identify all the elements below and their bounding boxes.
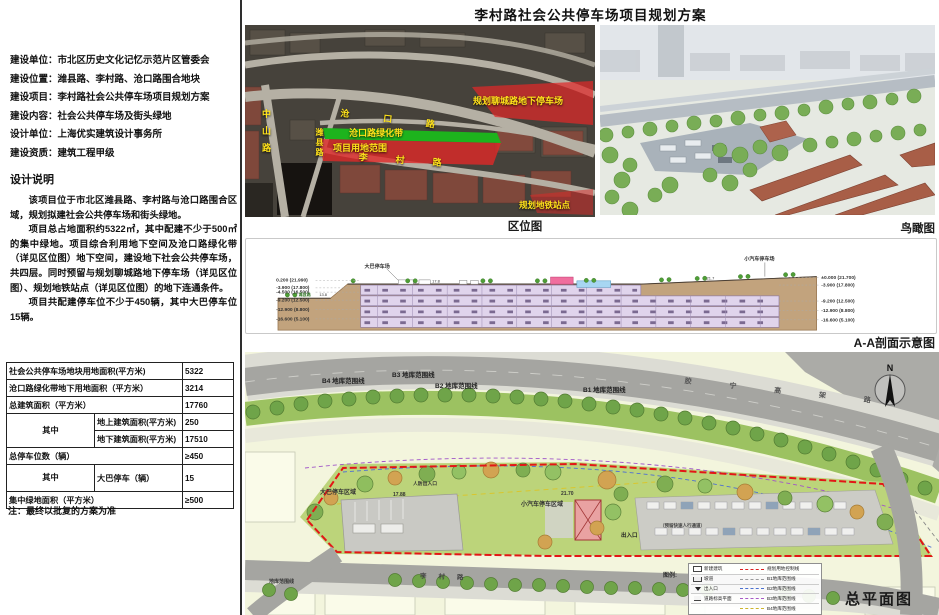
planned-parking-label: 规划聊城路地下停车场 (473, 97, 563, 106)
metro-label: 规划地铁站点 (519, 201, 570, 210)
road-elevation-icon (691, 596, 704, 601)
svg-text:-16.600 (5.100): -16.600 (5.100) (821, 317, 855, 323)
green-belt-label: 沧口路绿化带 (349, 129, 403, 138)
design-paragraph: 该项目位于市北区潍县路、李村路与沧口路围合区域，规划拟建社会公共停车场和街头绿地… (10, 193, 237, 222)
blue-dash-icon (740, 588, 767, 589)
legend-left-label: 道路标高平面 (704, 596, 740, 602)
design-notes: 设计说明 该项目位于市北区潍县路、李村路与沧口路围合区域，规划拟建社会公共停车场… (10, 171, 237, 324)
table-row: 总停车位数（辆） ≥450 (7, 448, 234, 465)
elevation-label-a: 17.88 (393, 493, 406, 498)
dark-block (245, 183, 273, 217)
design-notes-heading: 设计说明 (10, 171, 237, 187)
car-parking-lot (635, 490, 893, 550)
svg-text:0.200 (21.990): 0.200 (21.990) (276, 277, 308, 283)
b2-line-label: B2 地库范围线 (435, 384, 478, 391)
spec-value: 3214 (183, 380, 234, 397)
section-drawing: 0.200 (21.990) -3.900 (17.800) -4.500 (1… (246, 239, 936, 333)
table-row: 沧口路绿化带地下用地面积（平方米） 3214 (7, 380, 234, 397)
info-line: 建设位置：潍县路、李村路、沧口路围合地块 (10, 71, 238, 90)
aerial-view-caption: 鸟瞰图 (840, 220, 935, 236)
entrance-label: 出入口 (621, 534, 638, 540)
site-plan-caption: 总平面图 (845, 588, 913, 609)
svg-text:-9.200 (12.500): -9.200 (12.500) (821, 298, 855, 304)
planning-board: 建设单位：市北区历史文化记忆示范片区管委会 建设位置：潍县路、李村路、沧口路围合… (0, 0, 939, 615)
weixian-road-label: 潍县路 (299, 291, 312, 297)
spec-table: 社会公共停车场地块用地面积(平方米) 5322 沧口路绿化带地下用地面积（平方米… (6, 362, 234, 509)
aerial-view-drawing (600, 25, 935, 215)
location-map: 规划聊城路地下停车场 沧口路绿化带 项目用地范围 规划地铁站点 中山路 潍县路 … (245, 25, 595, 217)
weixian-road-label: 潍县路 (315, 128, 323, 158)
car-area-label: 小汽车停车区域 (521, 502, 563, 508)
elevation-13-8: 13.8 (319, 292, 327, 297)
table-row: 其中 地上建筑面积(平方米) 250 (7, 414, 234, 431)
svg-text:-3.900 (17.800): -3.900 (17.800) (821, 282, 855, 288)
legend-right-label: 规划用地控制线 (767, 566, 819, 572)
spec-label: 大巴停车（辆） (95, 465, 183, 492)
legend-row: 坡道 B1地库范围线 (691, 575, 819, 585)
b4-line-label: B4 地库范围线 (322, 379, 365, 386)
svg-text:-9.200 (12.500): -9.200 (12.500) (276, 298, 310, 304)
spec-label: 社会公共停车场地块用地面积(平方米) (7, 363, 183, 380)
spec-value: 17760 (183, 397, 234, 414)
legend-row: 新建建筑 规划用地控制线 (691, 565, 819, 575)
spec-label: 沧口路绿化带地下用地面积（平方米） (7, 380, 183, 397)
site-plan: N B4 地库范围线 B3 地库范围线 B2 地库范围线 B1 地库范围线 胶宁… (245, 352, 939, 615)
table-row: 其中 大巴停车（辆） 15 (7, 465, 234, 492)
elevation-21-7: 21.7 (707, 275, 715, 280)
zhongshan-road-label: 中山路 (261, 109, 270, 160)
gray-dash-icon (740, 579, 767, 580)
panel-divider (240, 0, 242, 615)
entrance-building (551, 277, 574, 284)
car-parking-label: 小汽车停车场 (743, 256, 774, 263)
yellow-dash-icon (740, 608, 767, 609)
spec-group: 其中 (7, 465, 95, 492)
spec-group: 其中 (7, 414, 95, 448)
tall-building (658, 25, 684, 77)
bus-leader (387, 269, 398, 280)
svg-text:-12.900 (8.800): -12.900 (8.800) (276, 307, 310, 313)
svg-text:±0.000 (21.700): ±0.000 (21.700) (821, 275, 856, 281)
table-row: 社会公共停车场地块用地面积(平方米) 5322 (7, 363, 234, 380)
svg-text:-12.900 (8.800): -12.900 (8.800) (821, 308, 855, 314)
location-map-caption: 区位图 (455, 218, 595, 234)
walkway-note: （预留快速人行通道） (660, 524, 705, 529)
legend-row: 出入口 B2地库范围线 (691, 585, 819, 595)
spec-value: ≥450 (183, 448, 234, 465)
legend-left-label: 坡道 (704, 576, 740, 582)
spec-value: 250 (183, 414, 234, 431)
legend-right-label: B3地库范围线 (767, 596, 819, 602)
page-title: 李村路社会公共停车场项目规划方案 (242, 4, 939, 24)
svg-text:-16.600 (5.100): -16.600 (5.100) (276, 316, 310, 322)
elevation-label-b: 21.70 (561, 492, 574, 497)
legend-left-label: 出入口 (704, 586, 740, 592)
section-caption: A-A剖面示意图 (770, 334, 935, 351)
info-line: 建设项目：李村路社会公共停车场项目规划方案 (10, 89, 238, 108)
spec-value: 15 (183, 465, 234, 492)
spec-label: 总停车位数（辆） (7, 448, 183, 465)
bus-parking-label: 大巴停车场 (364, 263, 389, 270)
spec-label: 地上建筑面积(平方米) (95, 414, 183, 431)
ramp-icon (691, 577, 704, 582)
design-paragraph: 项目共配建停车位不少于450辆，其中大巴停车位15辆。 (10, 295, 237, 324)
spec-label: 地下建筑面积(平方米) (95, 431, 183, 448)
purple-dash-icon (740, 598, 767, 599)
legend-title: 图例: (663, 570, 677, 579)
legend-right-label: B1地库范围线 (767, 576, 819, 582)
table-note: 注：最终以批复的方案为准 (8, 504, 116, 517)
info-line: 设计单位：上海优实建筑设计事务所 (10, 126, 238, 145)
aerial-view (600, 25, 935, 215)
garage-line-note: 地库范围线 (269, 580, 294, 585)
new-building-icon (691, 566, 704, 572)
entrance-triangle-icon (691, 587, 704, 591)
spec-value: 5322 (183, 363, 234, 380)
design-paragraph: 项目总占地面积约5322㎡，其中配建不少于500㎡的集中绿地。项目综合利用地下空… (10, 222, 237, 295)
section-diagram: 0.200 (21.990) -3.900 (17.800) -4.500 (1… (245, 238, 937, 334)
legend-row: B4地库范围线 (691, 604, 819, 613)
info-line: 建设单位：市北区历史文化记忆示范片区管委会 (10, 52, 238, 71)
right-levels: ±0.000 (21.700) -3.900 (17.800) -9.200 (… (821, 275, 856, 323)
legend: 新建建筑 规划用地控制线 坡道 B1地库范围线 出入口 B2地库范围线 道路标高… (688, 563, 822, 615)
info-line: 建设资质：建筑工程甲级 (10, 145, 238, 164)
spec-label: 总建筑面积（平方米） (7, 397, 183, 414)
b3-line-label: B3 地库范围线 (392, 373, 435, 380)
b1-line-label: B1 地库范围线 (583, 388, 626, 395)
legend-right-label: B4地库范围线 (767, 606, 819, 612)
legend-right-label: B2地库范围线 (767, 586, 819, 592)
legend-row: 道路标高平面 B3地库范围线 (691, 594, 819, 604)
north-label: N (887, 363, 894, 373)
bus-area-label: 大巴停车区域 (320, 490, 356, 496)
table-row: 总建筑面积（平方米） 17760 (7, 397, 234, 414)
spec-value: 17510 (183, 431, 234, 448)
bus-parking-lot (341, 494, 463, 552)
red-dash-icon (740, 569, 767, 570)
project-info-block: 建设单位：市北区历史文化记忆示范片区管委会 建设位置：潍县路、李村路、沧口路围合… (10, 52, 238, 163)
info-line: 建设内容：社会公共停车场及街头绿地 (10, 108, 238, 127)
elevation-17-8: 17.8 (432, 279, 440, 284)
civil-defense-label: 人防出入口 (413, 483, 437, 488)
legend-left-label: 新建建筑 (704, 566, 740, 572)
spec-value: ≥500 (183, 492, 234, 509)
